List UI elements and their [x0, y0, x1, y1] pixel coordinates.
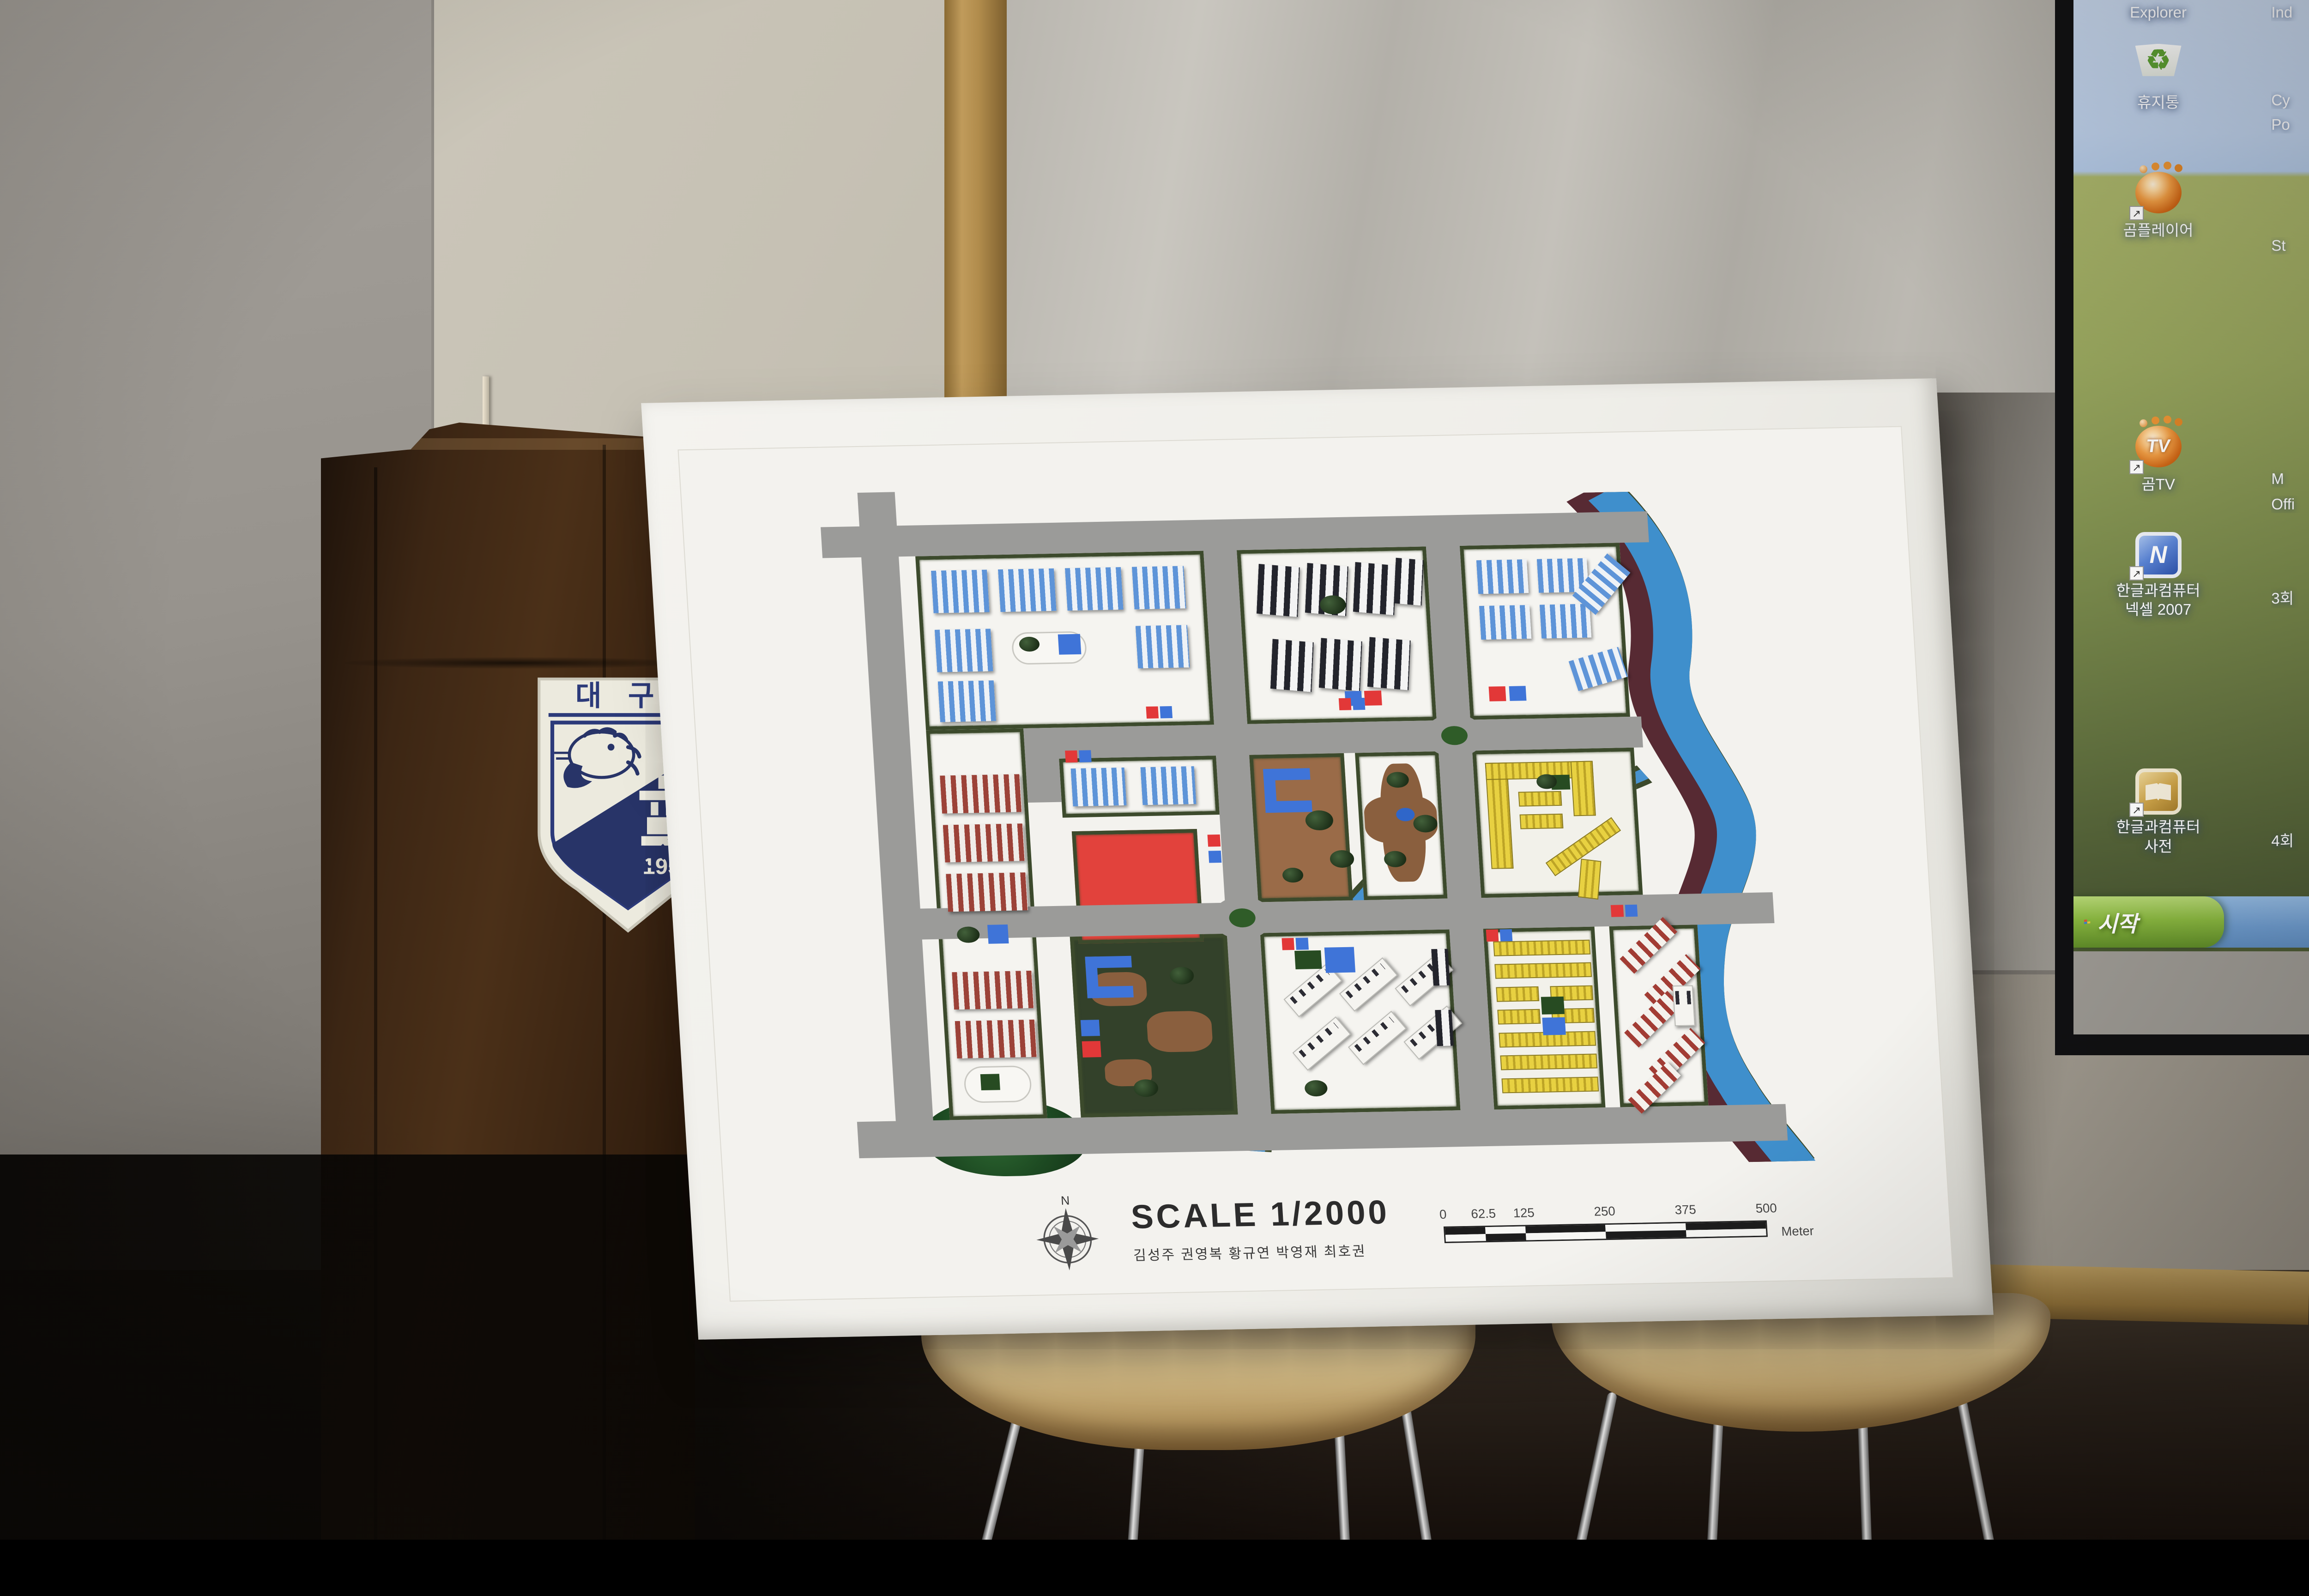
desktop-icon-partial-1[interactable]: Cy: [2271, 91, 2309, 109]
map-building-r-15: [940, 774, 1022, 814]
scalebar-label: 0: [1439, 1207, 1447, 1222]
desktop-icon-dictionary[interactable]: ↗한글과컴퓨터사전: [2083, 768, 2233, 856]
gom-tv-icon[interactable]: TV↗: [2135, 426, 2182, 472]
map-building-k-20: [1257, 564, 1300, 617]
map-building-b-5: [1135, 625, 1190, 669]
desktop-icon-partial-2[interactable]: Po: [2271, 116, 2309, 133]
map-dot-4: [1065, 750, 1078, 763]
projected-windows-desktop: Explorer♻휴지통↗곰플레이어TV↗곰TVN↗한글과컴퓨터넥셀 2007↗…: [2073, 0, 2309, 951]
map-sqr-29: [1082, 1041, 1101, 1058]
recycle-bin-icon[interactable]: ♻: [2135, 44, 2182, 90]
map-dot-5: [1079, 750, 1092, 762]
map-scale-title: SCALE 1/2000: [1130, 1193, 1391, 1236]
desktop-icon-partial-7[interactable]: 4회: [2271, 828, 2309, 851]
desktop-icon-nexcell[interactable]: N↗한글과컴퓨터넥셀 2007: [2083, 532, 2233, 619]
map-building-y-44: [1496, 986, 1539, 1002]
map-building-k-33: [1431, 949, 1450, 985]
recycle-bin-label[interactable]: 휴지통: [2083, 93, 2233, 112]
map-building-y-37: [1571, 761, 1596, 816]
gom-player-label[interactable]: 곰플레이어: [2083, 221, 2233, 240]
map-dot-7: [1296, 937, 1309, 950]
map-tree-31: [1133, 1079, 1159, 1097]
taskbar[interactable]: 시작: [2073, 896, 2309, 948]
map-dot-9: [1500, 929, 1513, 942]
room-photo: 대구 1956 TAEGU UNIVER: [0, 0, 2309, 1540]
map-sqb-11: [1509, 686, 1527, 701]
map-building-b-12: [1540, 604, 1592, 639]
screen-surface: Explorer♻휴지통↗곰플레이어TV↗곰TVN↗한글과컴퓨터넥셀 2007↗…: [2073, 0, 2309, 1034]
svg-text:N: N: [1060, 1194, 1070, 1208]
map-building-y-38: [1518, 791, 1562, 806]
map-building-b-4: [935, 629, 993, 672]
desktop-icon-partial-3[interactable]: St: [2271, 237, 2309, 254]
map-dot-12: [1208, 834, 1221, 847]
map-sqb-35: [1542, 1017, 1566, 1035]
desktop-icon-gom-tv[interactable]: TV↗곰TV: [2083, 417, 2233, 494]
map-sqg-34: [1541, 997, 1565, 1015]
explorer-label[interactable]: Explorer: [2083, 3, 2233, 22]
map-dot-13: [1209, 851, 1221, 863]
desktop-icon-partial-4[interactable]: M: [2271, 470, 2309, 488]
map-sqg-32: [1294, 950, 1322, 969]
nexcell-label2[interactable]: 넥셀 2007: [2083, 600, 2233, 619]
map-building-b-11: [1479, 605, 1531, 640]
map-sqb-33: [1324, 947, 1355, 973]
dictionary-icon[interactable]: ↗: [2135, 768, 2182, 815]
map-building-k-22: [1353, 562, 1396, 615]
map-ublue-27: [1085, 956, 1134, 998]
map-building-k-25: [1319, 638, 1362, 691]
map-scalebar: 062.5125250375500 Meter: [1443, 1201, 1768, 1243]
windows-logo-icon: [2084, 919, 2091, 925]
desktop-icon-partial-5[interactable]: Offi: [2271, 496, 2309, 513]
map-building-b-2: [1065, 567, 1123, 611]
map-building-s-56: [1673, 985, 1696, 1026]
map-tree-36: [1305, 1080, 1328, 1096]
map-authors: 김성주 권영복 황규연 박영재 최호권: [1133, 1239, 1392, 1264]
desktop-icon-explorer[interactable]: Explorer: [2083, 3, 2233, 22]
scalebar-label: 125: [1513, 1205, 1535, 1221]
compass-rose-icon: N: [1030, 1190, 1104, 1275]
desktop-icon-recycle-bin[interactable]: ♻휴지통: [2083, 44, 2233, 112]
gom-tv-label[interactable]: 곰TV: [2083, 475, 2233, 494]
map-building-r-18: [952, 970, 1034, 1010]
map-building-k-24: [1270, 639, 1313, 692]
map-dot-3: [1353, 698, 1366, 710]
map-dot-1: [1160, 706, 1173, 719]
map-sqr-10: [1489, 686, 1506, 701]
map-building-b-7: [1070, 768, 1127, 806]
map-building-r-19: [955, 1020, 1037, 1059]
map-building-y-46: [1497, 1009, 1541, 1025]
map-road-3: [1023, 728, 1061, 802]
map-ublue-12: [1263, 768, 1312, 812]
dictionary-label[interactable]: 한글과컴퓨터: [2083, 817, 2233, 836]
map-building-b-9: [1476, 559, 1529, 594]
site-plan-sheet: N SCALE 1/2000 김성주 권영복 황규연 박영재 최호권 062.5…: [677, 426, 1953, 1301]
map-patch-25: [1146, 1011, 1213, 1052]
map-dot-8: [1486, 929, 1499, 942]
map-dot-10: [1611, 905, 1624, 917]
map-building-y-43: [1494, 962, 1592, 979]
map-building-b-0: [931, 570, 989, 613]
projection-screen: Explorer♻휴지통↗곰플레이어TV↗곰TVN↗한글과컴퓨터넥셀 2007↗…: [2055, 0, 2309, 1055]
map-sqr-9: [1364, 691, 1382, 706]
desktop-icon-gom-player[interactable]: ↗곰플레이어: [2083, 163, 2233, 240]
map-building-b-3: [1132, 566, 1186, 610]
start-button-label: 시작: [2097, 906, 2138, 938]
dictionary-label2[interactable]: 사전: [2083, 837, 2233, 856]
map-building-r-16: [943, 823, 1025, 863]
map-sqg-6: [980, 1074, 1000, 1091]
map-dot-11: [1625, 904, 1638, 917]
scalebar-label: 250: [1594, 1204, 1616, 1219]
desktop-icon-partial-6[interactable]: 3회: [2271, 586, 2309, 608]
map-tree-3: [956, 926, 979, 943]
nexcell-label[interactable]: 한글과컴퓨터: [2083, 581, 2233, 600]
map-building-b-6: [938, 681, 996, 722]
scalebar-label: 62.5: [1471, 1206, 1496, 1221]
gom-player-icon[interactable]: ↗: [2135, 172, 2182, 218]
scalebar-label: 500: [1755, 1201, 1777, 1216]
map-building-y-50: [1501, 1076, 1599, 1093]
map-building-b-8: [1140, 766, 1197, 805]
map-dot-0: [1146, 707, 1159, 719]
map-sqb-4: [987, 925, 1009, 944]
desktop-icon-partial-0[interactable]: Ind: [2271, 4, 2309, 21]
map-sqb-2: [1058, 634, 1081, 655]
map-title-block: N SCALE 1/2000 김성주 권영복 황규연 박영재 최호권 062.5…: [1029, 1166, 1793, 1287]
site-plan-map: [847, 489, 1817, 1178]
map-building-k-23: [1394, 558, 1424, 606]
map-building-r-17: [946, 872, 1028, 912]
map-building-y-41: [1578, 858, 1602, 900]
map-dot-6: [1282, 938, 1295, 950]
scalebar-label: 375: [1674, 1202, 1697, 1217]
map-sqb-28: [1081, 1020, 1100, 1036]
nexcell-icon[interactable]: N↗: [2135, 532, 2182, 578]
map-building-k-26: [1367, 637, 1410, 690]
presentation-board: N SCALE 1/2000 김성주 권영복 황규연 박영재 최호권 062.5…: [641, 378, 1994, 1340]
map-building-k-34: [1435, 1010, 1454, 1046]
wood-trim-strip: [944, 0, 1007, 429]
map-building-y-42: [1493, 940, 1590, 956]
map-building-b-1: [998, 568, 1056, 612]
map-building-y-49: [1500, 1054, 1597, 1070]
map-building-y-39: [1520, 814, 1563, 829]
map-dot-2: [1339, 698, 1352, 710]
start-button[interactable]: 시작: [2073, 896, 2224, 948]
